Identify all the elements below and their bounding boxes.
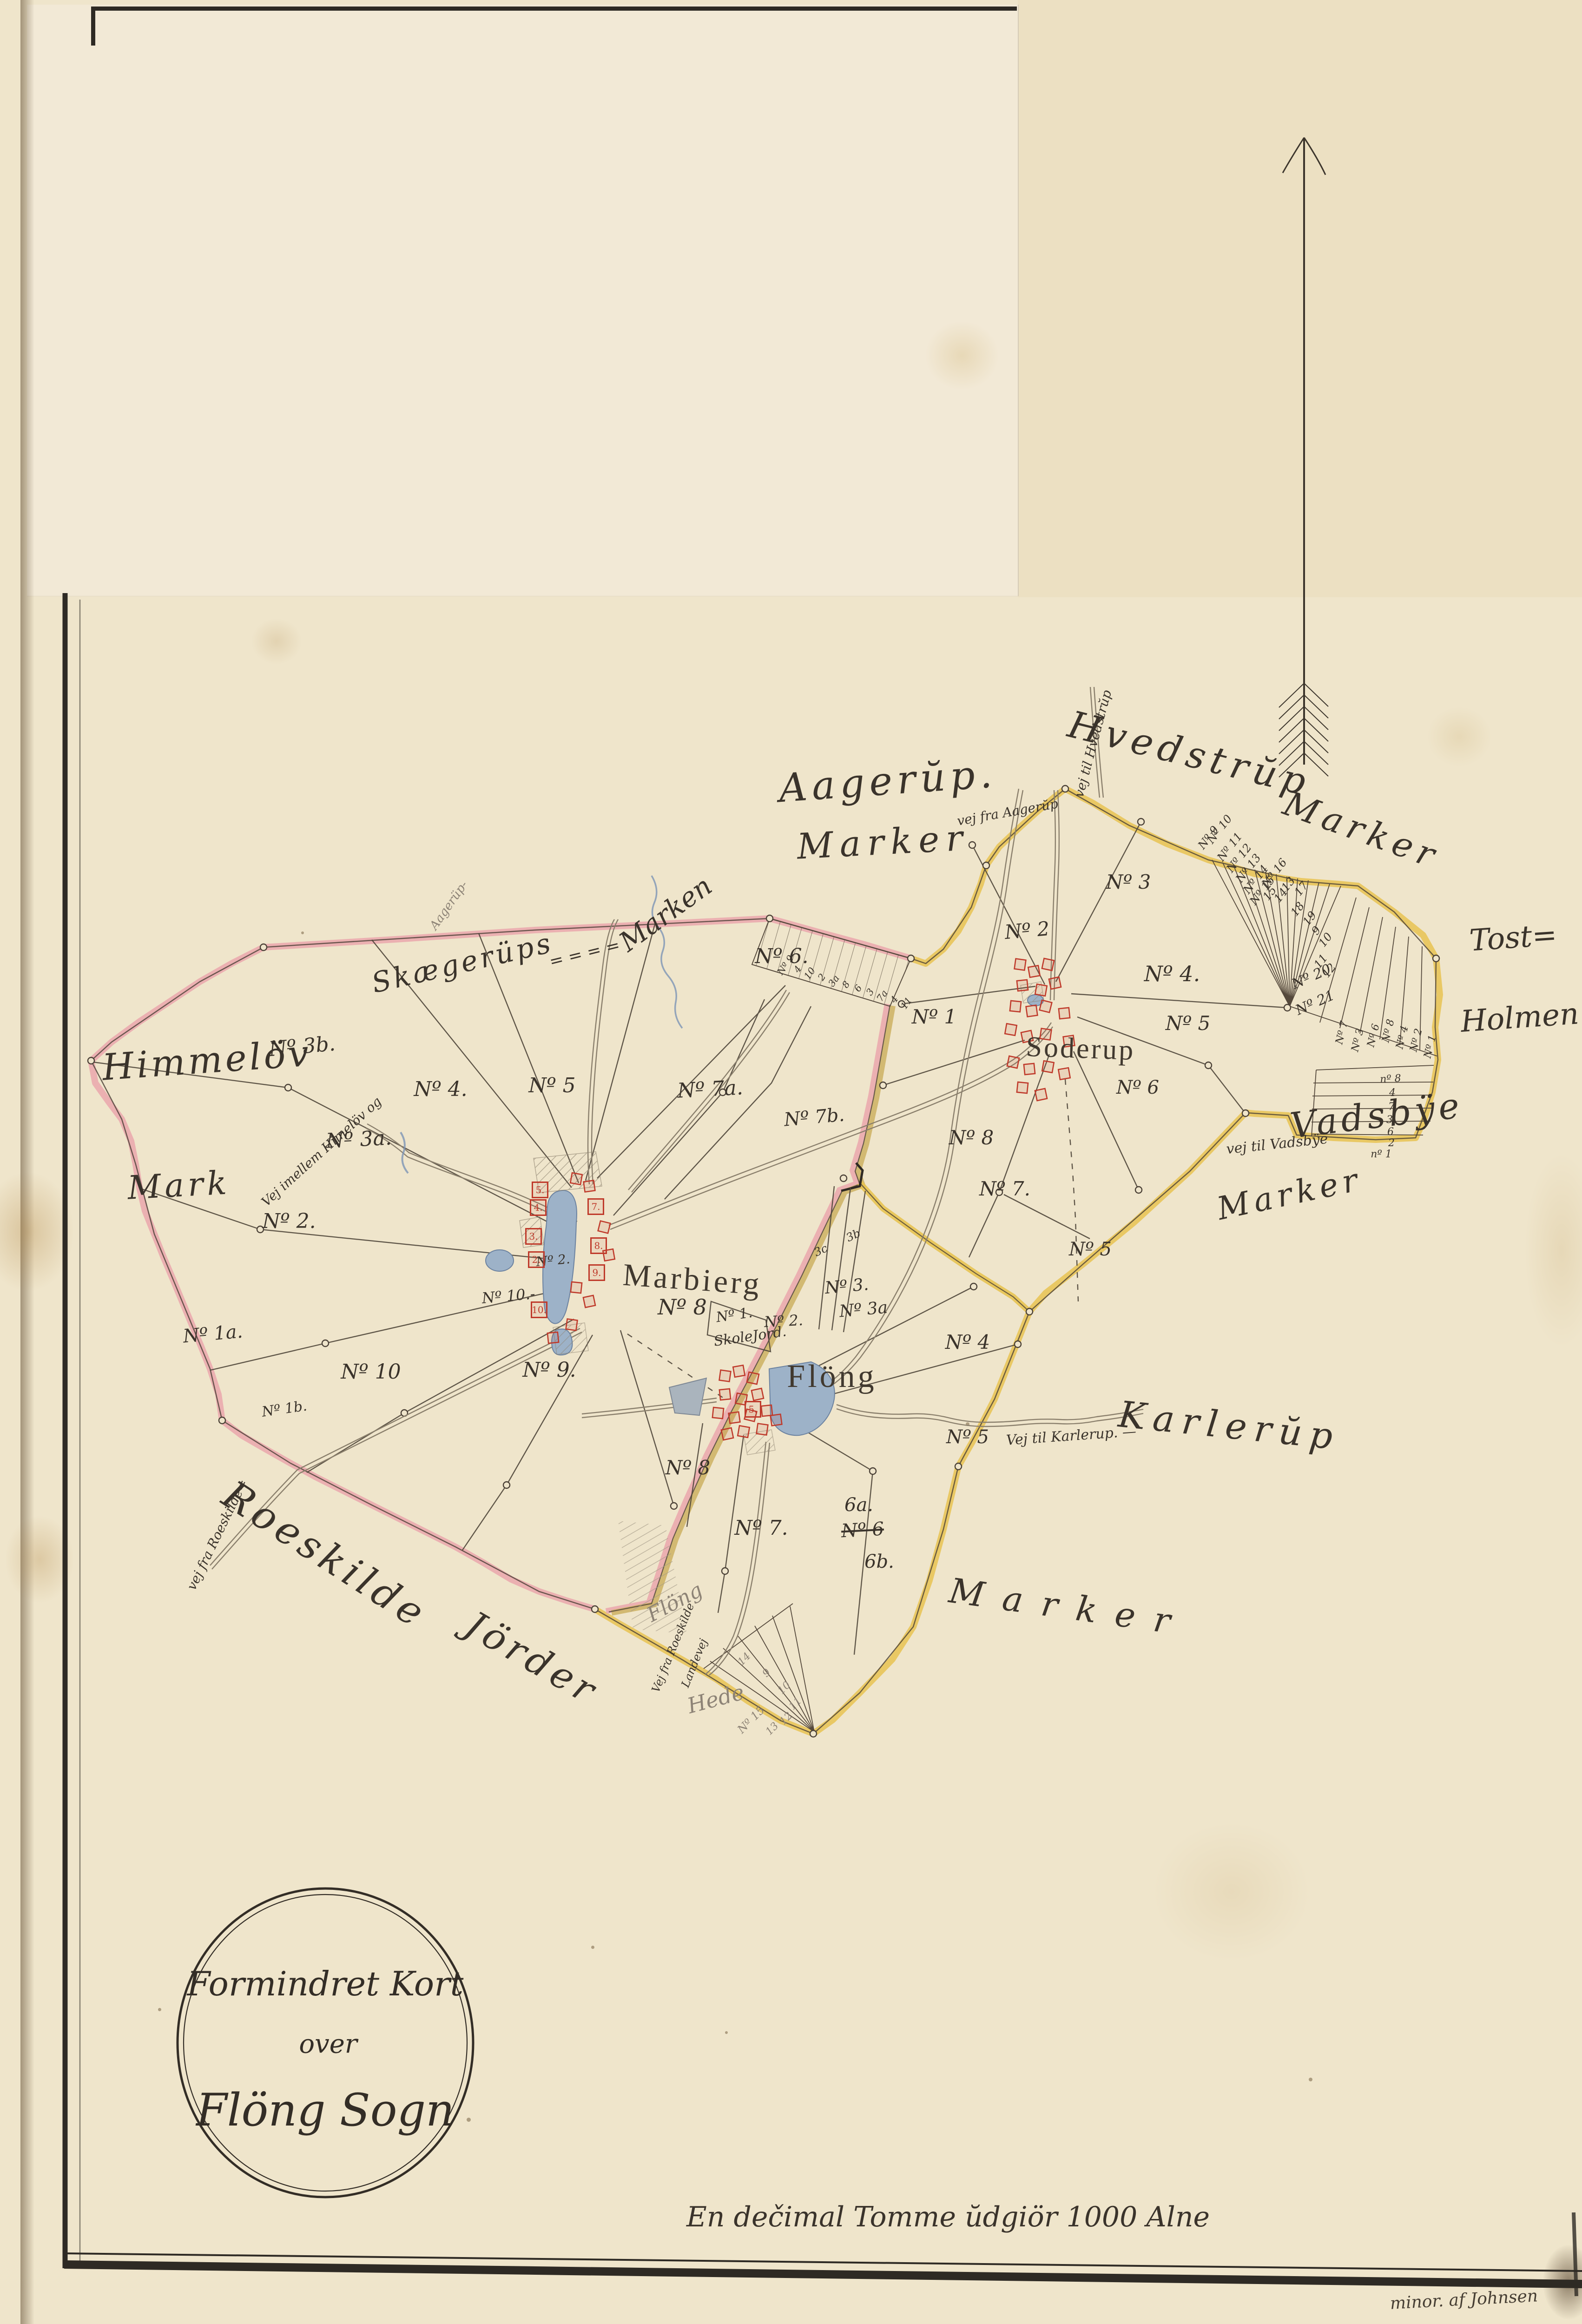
map-sheet: Aagerŭp.MarkerHvedstrŭpMarkerTost=Holmen… (0, 0, 1582, 2324)
map-label: Hede (685, 1681, 746, 1717)
building-number-marker: 2. (528, 1251, 545, 1268)
map-label: Nº 8 (949, 1128, 994, 1148)
map-label: Nº 1a. (182, 1322, 244, 1346)
map-label: SkoleJord. (713, 1325, 787, 1349)
map-label: Flöng (644, 1580, 705, 1626)
map-label: Aagerŭp. (778, 754, 998, 808)
map-label: Nº 1. (715, 1306, 753, 1325)
building-number-marker: 9. (588, 1264, 605, 1281)
map-label: 6 (852, 983, 864, 993)
map-label: 13 (764, 1721, 780, 1737)
map-label: Marker (947, 1573, 1191, 1641)
map-label: Skægerüps (369, 929, 556, 997)
map-label: Nº 3b. (268, 1034, 336, 1060)
map-label: Marken (615, 871, 717, 956)
map-label: 14 (736, 1651, 752, 1667)
map-label: Nº 1b. (261, 1399, 308, 1419)
map-label: Nº 3. (824, 1276, 870, 1297)
map-label: Nº 3 (1350, 1028, 1366, 1053)
map-label: Nº 6 (1116, 1078, 1159, 1097)
map-label: 12 (778, 1710, 794, 1727)
map-label: Nº 4. (1144, 963, 1200, 984)
map-label: Mark (127, 1166, 231, 1204)
building-number-marker: 7. (587, 1198, 604, 1215)
map-label: Roeskilde (216, 1474, 434, 1635)
map-label: Nº 2 (1409, 1028, 1424, 1053)
map-label: Soderup (1026, 1032, 1136, 1065)
map-label: Nº 7. (979, 1179, 1030, 1199)
map-label: Landevej (679, 1637, 709, 1689)
map-label: Holmen (1460, 999, 1580, 1037)
map-label: 3c (812, 1242, 829, 1258)
map-label: Nº 8 (658, 1296, 707, 1318)
map-label: Nº 7a. (677, 1077, 743, 1101)
map-label: Karlerŭp (1117, 1396, 1342, 1456)
map-label: Aagerüp- (428, 879, 470, 932)
map-label: Nº 2 (1004, 919, 1050, 942)
map-label: Marbierg (622, 1259, 763, 1300)
map-label: vej til Vadsbÿe (1226, 1132, 1329, 1157)
map-label: Jörder (459, 1606, 605, 1711)
map-label: Flöng (787, 1360, 877, 1393)
map-label: Nº 10.- (481, 1286, 535, 1306)
building-number-marker: 5. (532, 1182, 548, 1198)
map-label: Nº 6 (841, 1520, 884, 1541)
map-label: Nº 8 (1381, 1018, 1397, 1043)
map-label: Nº 9. (522, 1360, 576, 1380)
map-label: 9 (761, 1667, 772, 1679)
map-label: 3b (844, 1228, 862, 1244)
map-label: 7 (1388, 1102, 1395, 1112)
map-label: Nº 4 (945, 1333, 990, 1352)
map-label: Nº 8 (666, 1458, 711, 1478)
map-label: 3 (1386, 1115, 1393, 1125)
map-label: Nº 6 (1366, 1023, 1382, 1048)
building-number-marker: 8. (590, 1237, 607, 1254)
map-label: 19 (1301, 910, 1318, 928)
map-label: Nº 4 (1395, 1025, 1411, 1050)
map-label: 7a (875, 988, 890, 1003)
map-label: 3 (864, 987, 876, 997)
map-label: Nº 21 (1294, 988, 1337, 1017)
map-label: Nº 15 (736, 1704, 767, 1736)
map-label: Marker (1279, 786, 1444, 874)
map-label: Nº 4. (414, 1079, 467, 1100)
map-label: Marker (796, 820, 970, 864)
cartouche-title-line2: over (299, 2029, 357, 2060)
map-label: vej fra Roeskilde= (185, 1478, 250, 1592)
map-label: 6b. (864, 1552, 894, 1571)
map-label: 6 (1387, 1127, 1394, 1137)
map-label: Nº 7. (734, 1518, 788, 1538)
map-label: Nº 5 (946, 1428, 989, 1446)
map-label: 2 (816, 972, 827, 982)
map-label: nº 1 (1371, 1149, 1392, 1160)
map-label: Nº 5 (528, 1076, 575, 1096)
map-label: 10 (776, 1680, 792, 1696)
map-label: Nº 5 (1069, 1240, 1112, 1259)
map-label: 6a. (844, 1496, 873, 1514)
building-number-marker: 3. (525, 1228, 542, 1245)
map-label: Nº 7 (1334, 1020, 1350, 1045)
building-number-marker: 4. (530, 1199, 547, 1216)
map-label: Nº 1 (1423, 1034, 1438, 1059)
building-number-marker: 5. (745, 1401, 761, 1418)
map-label: Nº 20 (1290, 962, 1333, 991)
map-label: nº 8 (1380, 1074, 1402, 1085)
map-label: Nº 3a. (325, 1128, 392, 1151)
cartouche-title-line3: Flöng Sogn (196, 2084, 455, 2136)
map-label: 8 (840, 979, 851, 990)
building-number-marker: 10. (531, 1301, 547, 1318)
scale-note: En dečimal Tomme ŭdgiör 1000 Alne (686, 2201, 1210, 2233)
map-label: Nº 3a (839, 1300, 889, 1320)
map-label: Nº 2. (262, 1211, 316, 1232)
map-label: Vej til Karlerup. — (1006, 1425, 1137, 1447)
map-label: Vej imellem Himelöv og (259, 1095, 384, 1208)
map-label: vej fra Aagerŭp (956, 797, 1059, 828)
map-label: = = = = (547, 937, 621, 971)
map-label: 11 (787, 1696, 804, 1712)
map-label: Marker (1214, 1164, 1365, 1225)
map-label: Nº 7b. (783, 1105, 845, 1129)
cartouche-title-line1: Formindret Kort (187, 1964, 464, 2003)
map-label: Nº 1 (912, 1007, 957, 1027)
map-label: Nº 10 (341, 1362, 401, 1382)
map-label: 4 (1389, 1088, 1396, 1098)
map-label: Nº 3 (1106, 872, 1151, 892)
map-label: Tost= (1469, 920, 1558, 956)
map-label: 4 (889, 994, 900, 1004)
map-label: 2 (1388, 1138, 1395, 1149)
map-label: 3a (827, 973, 841, 988)
map-label: Nº 5 (1166, 1014, 1211, 1033)
